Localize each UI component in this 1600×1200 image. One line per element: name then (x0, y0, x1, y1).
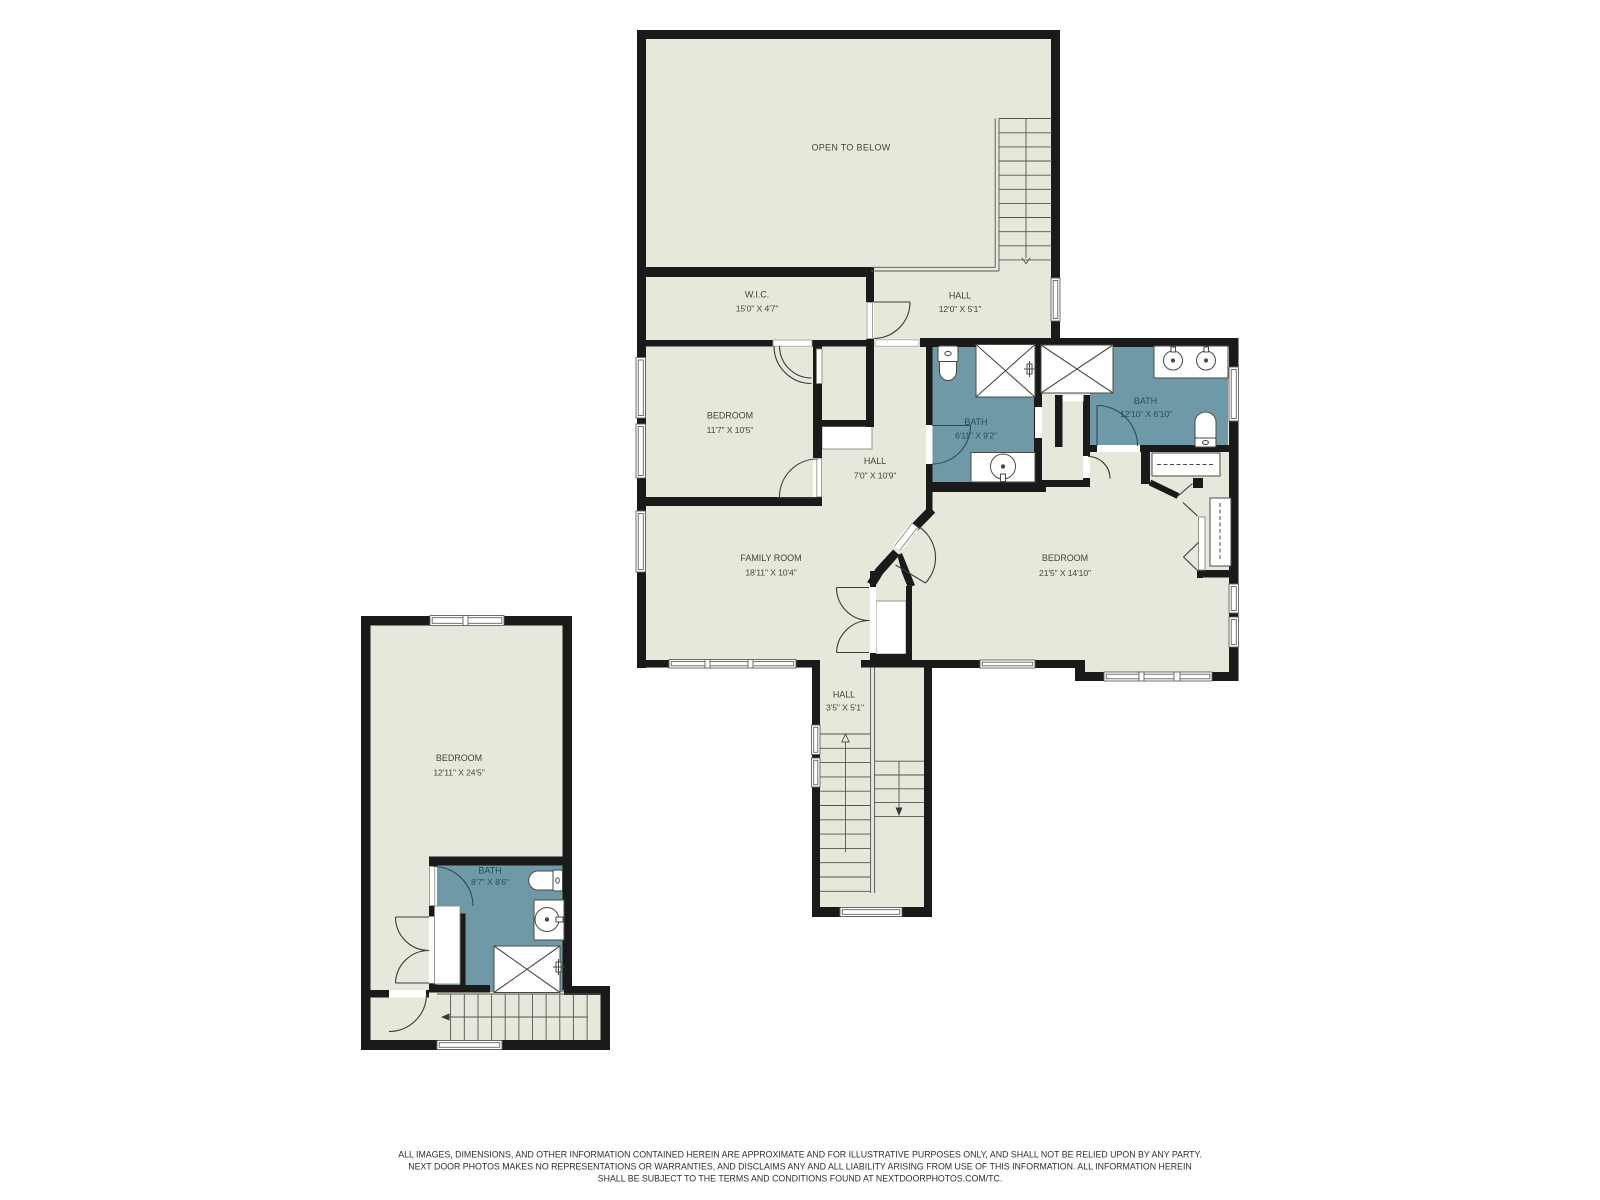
svg-text:3'5" X 5'1": 3'5" X 5'1" (826, 703, 864, 713)
svg-text:NEXT DOOR PHOTOS MAKES NO REPR: NEXT DOOR PHOTOS MAKES NO REPRESENTATION… (408, 1162, 1192, 1172)
svg-text:21'5" X 14'10": 21'5" X 14'10" (1039, 568, 1091, 578)
svg-text:12'10" X 6'10": 12'10" X 6'10" (1120, 409, 1172, 419)
svg-text:BATH: BATH (478, 866, 501, 876)
svg-text:FAMILY ROOM: FAMILY ROOM (740, 553, 801, 563)
svg-text:11'7" X 10'5": 11'7" X 10'5" (707, 425, 754, 435)
svg-text:15'0" X 4'7": 15'0" X 4'7" (736, 304, 779, 314)
svg-text:BEDROOM: BEDROOM (1042, 553, 1088, 563)
svg-text:BEDROOM: BEDROOM (707, 411, 753, 421)
svg-text:HALL: HALL (833, 690, 855, 700)
svg-text:BATH: BATH (1134, 396, 1157, 406)
svg-text:W.I.C.: W.I.C. (745, 290, 769, 300)
svg-text:6'11" X 9'2": 6'11" X 9'2" (955, 431, 997, 441)
svg-text:HALL: HALL (949, 291, 971, 301)
svg-text:12'0" X 5'1": 12'0" X 5'1" (939, 304, 982, 314)
svg-text:7'0" X 10'9": 7'0" X 10'9" (854, 471, 897, 481)
svg-text:12'11" X 24'5": 12'11" X 24'5" (433, 768, 484, 778)
svg-text:HALL: HALL (864, 456, 886, 466)
svg-text:8'7" X 8'6": 8'7" X 8'6" (471, 877, 509, 887)
svg-text:BEDROOM: BEDROOM (436, 753, 482, 763)
svg-text:18'11" X 10'4": 18'11" X 10'4" (745, 568, 796, 578)
svg-text:SHALL BE SUBJECT TO THE TERMS: SHALL BE SUBJECT TO THE TERMS AND CONDIT… (598, 1174, 1003, 1184)
svg-text:OPEN TO BELOW: OPEN TO BELOW (811, 143, 890, 153)
svg-text:ALL IMAGES, DIMENSIONS, AND OT: ALL IMAGES, DIMENSIONS, AND OTHER INFORM… (398, 1150, 1201, 1160)
svg-text:BATH: BATH (964, 417, 987, 427)
